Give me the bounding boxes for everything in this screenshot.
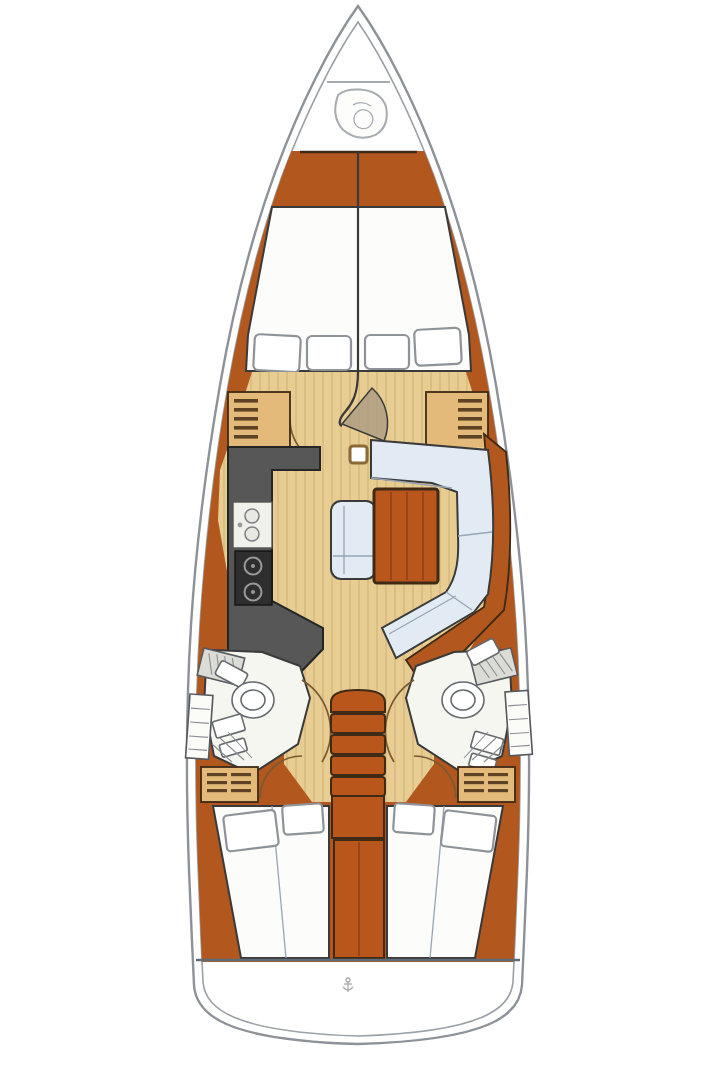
pillow xyxy=(282,803,324,835)
sink-bowl xyxy=(245,509,259,523)
louver-stripe xyxy=(234,399,258,403)
louver-stripe xyxy=(234,408,258,412)
louver-stripe xyxy=(458,417,482,421)
sink-bowl xyxy=(245,527,259,541)
step xyxy=(331,735,385,754)
pillow xyxy=(365,335,409,369)
burner-dot xyxy=(251,564,255,568)
forward-cabin-shelf-starboard xyxy=(426,392,488,448)
toilet-bowl xyxy=(451,690,475,710)
step xyxy=(331,690,385,712)
toilet-bowl xyxy=(241,690,265,710)
pillow xyxy=(441,810,497,852)
yacht-floor-plan-figure xyxy=(0,0,719,1080)
louver-stripe xyxy=(464,773,484,776)
companionway-base xyxy=(332,796,384,838)
pillow xyxy=(253,334,301,372)
louver-stripe xyxy=(488,789,508,792)
louver-stripe xyxy=(458,426,482,430)
burner-dot xyxy=(251,590,255,594)
louver-stripe xyxy=(488,773,508,776)
dinette-table xyxy=(374,489,438,583)
pillow xyxy=(393,803,435,835)
pillow xyxy=(414,328,462,366)
step xyxy=(331,714,385,733)
forward-cabin xyxy=(228,207,490,466)
louver-stripe xyxy=(231,773,251,776)
louver-stripe xyxy=(231,789,251,792)
louver-stripe xyxy=(207,781,227,784)
hanging-locker-starboard xyxy=(458,767,515,802)
galley-stove xyxy=(235,551,272,605)
hanging-locker-port xyxy=(201,767,258,802)
mast-post xyxy=(350,446,367,463)
louver-stripe xyxy=(207,789,227,792)
louver-stripe xyxy=(464,781,484,784)
head-starboard-shelf xyxy=(505,690,532,755)
pillow xyxy=(223,810,279,852)
louver-stripe xyxy=(458,408,482,412)
step xyxy=(331,756,385,775)
head-port-shelf xyxy=(186,694,213,759)
louver-stripe xyxy=(458,399,482,403)
forward-cabin-shelf-port xyxy=(228,392,290,448)
louver-stripe xyxy=(464,789,484,792)
louver-stripe xyxy=(207,773,227,776)
salon-bench-seat xyxy=(331,501,376,579)
companionway xyxy=(331,690,385,958)
louver-stripe xyxy=(234,417,258,421)
step xyxy=(331,777,385,796)
louver-stripe xyxy=(231,781,251,784)
louver-stripe xyxy=(488,781,508,784)
yacht-floor-plan xyxy=(0,0,719,1080)
faucet-dot xyxy=(238,523,243,528)
pillow xyxy=(307,336,351,370)
louver-stripe xyxy=(458,435,482,439)
louver-stripe xyxy=(234,426,258,430)
louver-stripe xyxy=(234,435,258,439)
